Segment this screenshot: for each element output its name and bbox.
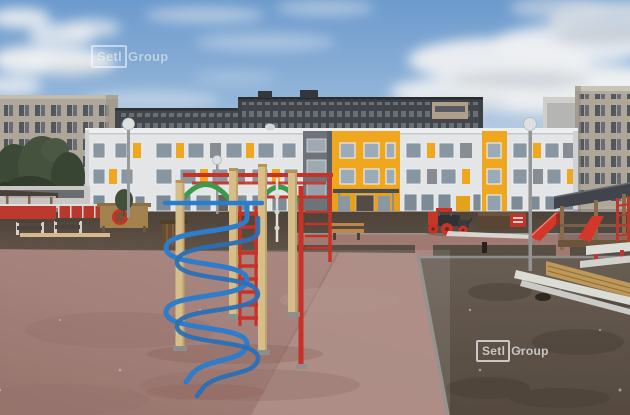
photo-scene: SetlGroup SetlGroup [0,0,630,415]
vignette [0,0,630,415]
